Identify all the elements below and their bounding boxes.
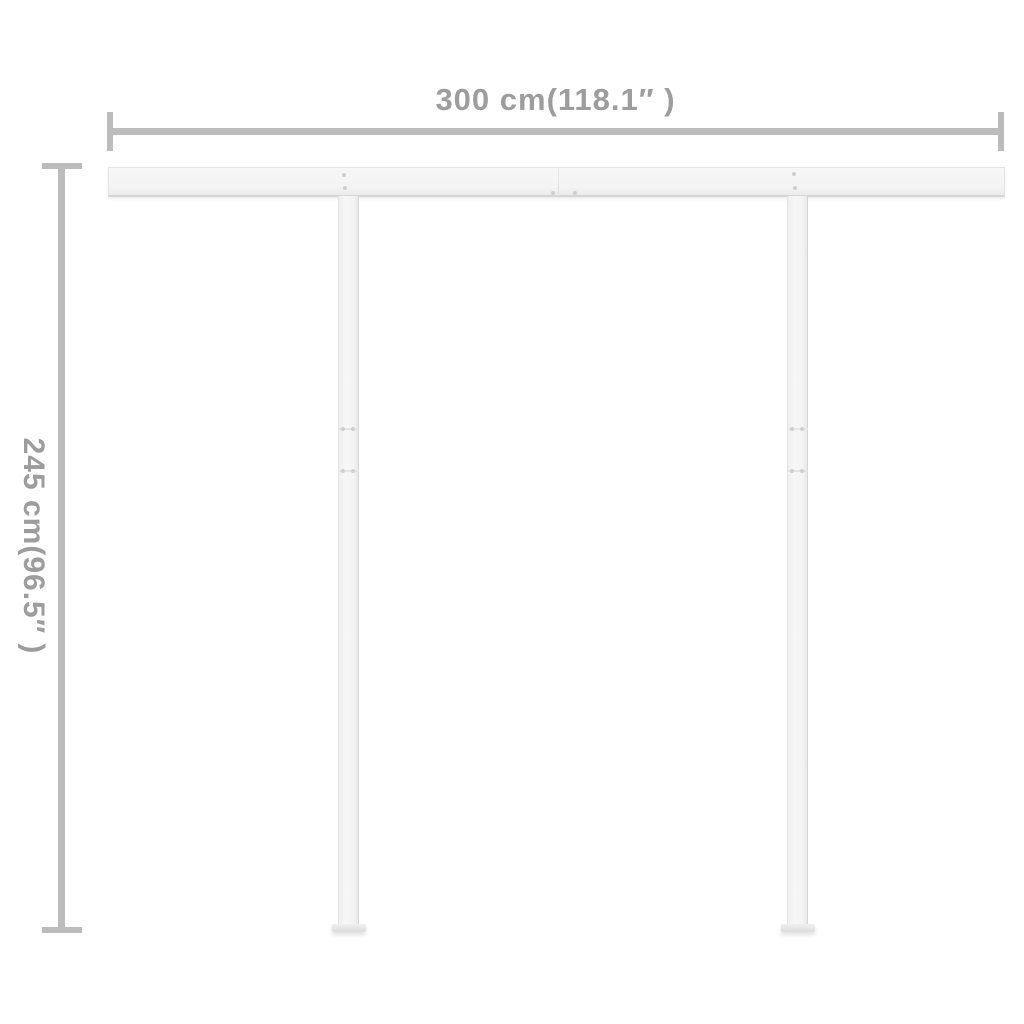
product-dimension-diagram: 300 cm(118.1″ ) 245 cm(96.5″ ) [0, 0, 1024, 1024]
left-post-base-plate [332, 924, 366, 932]
height-dimension-label: 245 cm(96.5″ ) [16, 438, 50, 655]
left-post [338, 196, 359, 927]
height-dimension-bottom-cap [42, 927, 82, 933]
screw-dot [343, 186, 347, 190]
width-dimension-line [107, 128, 1004, 135]
left-post-lower-joint [338, 470, 359, 472]
width-dimension-right-cap [998, 112, 1004, 151]
screw-dot [790, 427, 794, 431]
width-dimension-left-cap [107, 112, 113, 151]
right-post-upper-joint [787, 428, 808, 430]
crossbeam-center-seam [558, 168, 559, 196]
screw-dot [351, 427, 355, 431]
screw-dot [790, 469, 794, 473]
screw-dot [800, 427, 804, 431]
screw-dot [341, 427, 345, 431]
right-post-base-plate [781, 924, 815, 932]
width-dimension-label: 300 cm(118.1″ ) [107, 82, 1004, 118]
screw-dot [351, 469, 355, 473]
screw-dot [341, 469, 345, 473]
screw-dot [793, 186, 797, 190]
screw-dot [342, 173, 346, 177]
screw-dot [551, 191, 555, 195]
screw-dot [792, 172, 796, 176]
screw-dot [573, 191, 577, 195]
height-dimension-line [58, 165, 65, 931]
height-dimension-top-cap [42, 163, 82, 169]
left-post-upper-joint [338, 428, 359, 430]
right-post [787, 196, 808, 927]
screw-dot [800, 469, 804, 473]
awning-crossbeam [108, 167, 1005, 197]
right-post-lower-joint [787, 470, 808, 472]
